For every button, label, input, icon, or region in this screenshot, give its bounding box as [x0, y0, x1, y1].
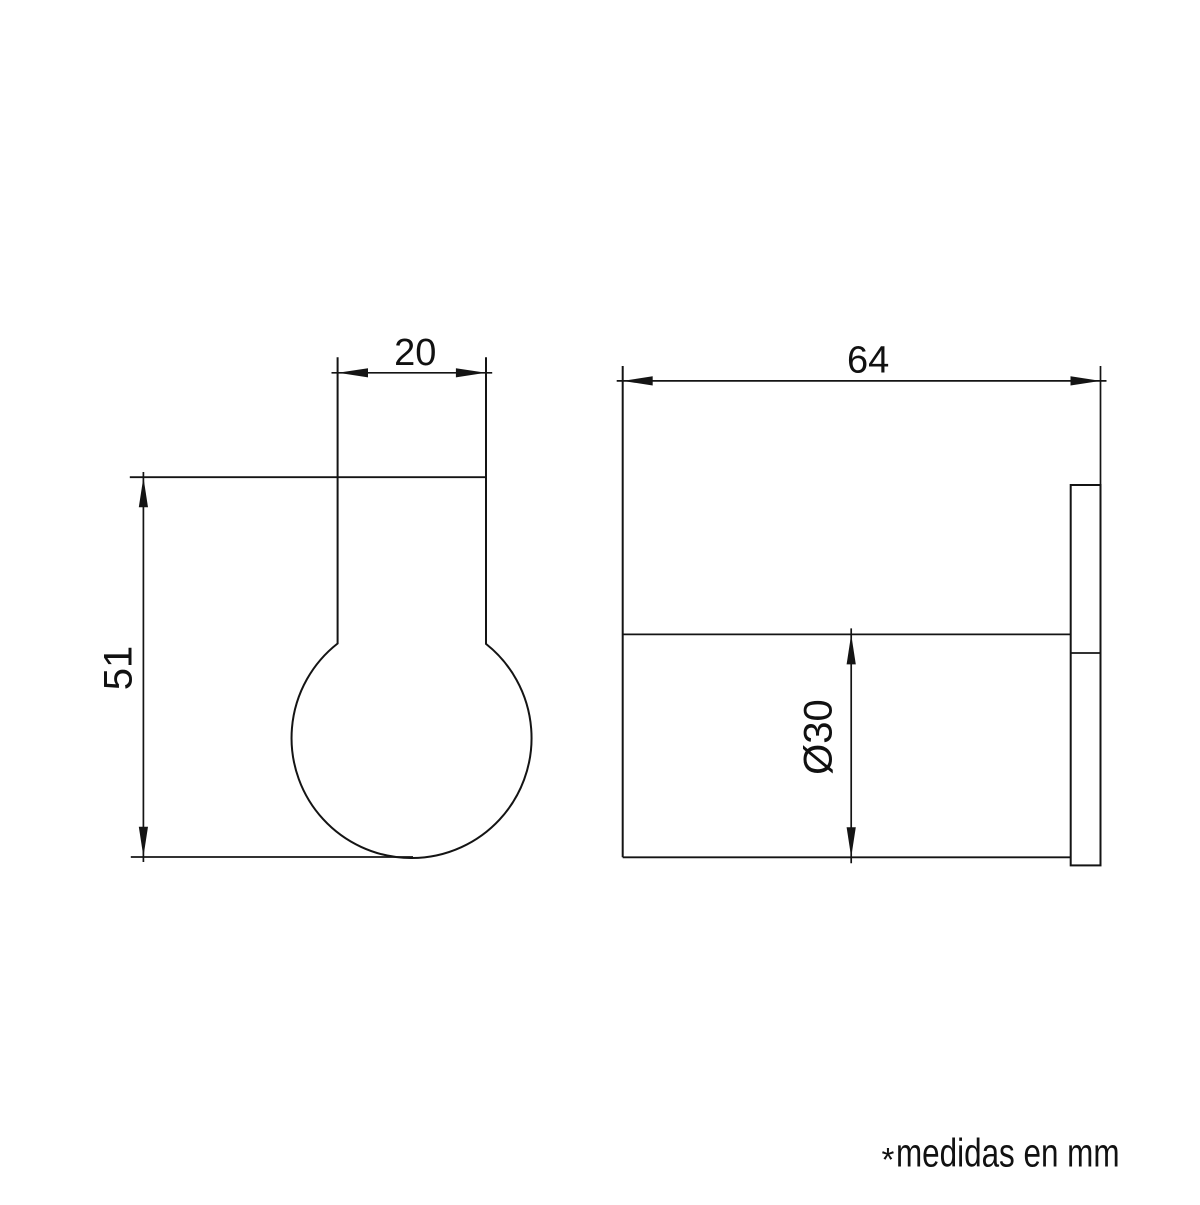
svg-text:*: *	[882, 1141, 895, 1178]
svg-text:20: 20	[394, 332, 436, 374]
svg-text:51: 51	[97, 646, 141, 691]
svg-text:Ø30: Ø30	[797, 699, 841, 775]
svg-text:64: 64	[847, 339, 889, 381]
svg-text:medidas en mm: medidas en mm	[896, 1131, 1120, 1175]
